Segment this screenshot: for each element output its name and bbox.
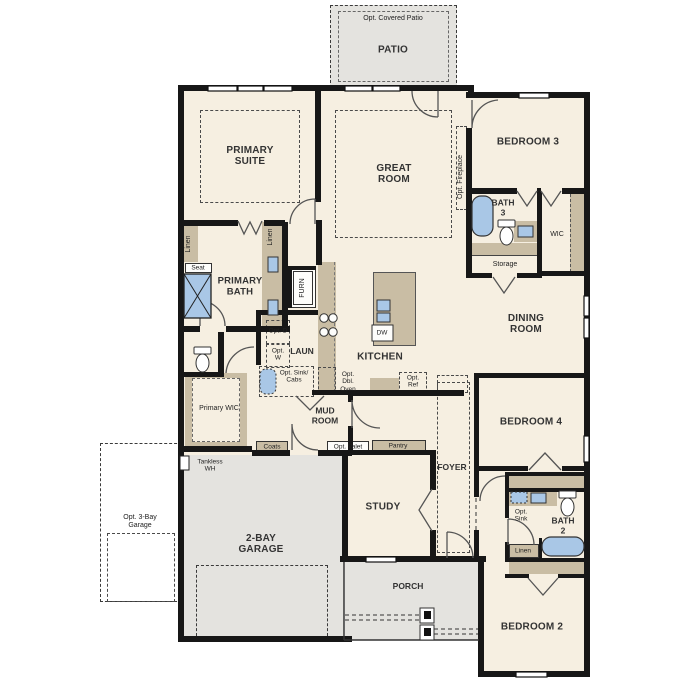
opt-sink-cabs-label: Opt. Sink/ Cabs — [274, 370, 314, 385]
patio-label: PATIO — [378, 44, 408, 55]
mudroom-hall-door — [352, 400, 380, 428]
toilet-bath3 — [498, 220, 515, 245]
island-sink — [377, 300, 390, 322]
opt-dryer-label: Opt. D — [268, 327, 288, 334]
bedroom4-door — [529, 453, 561, 470]
bath3-sink — [518, 226, 533, 237]
coats-label: Coats — [264, 443, 281, 450]
garage-label: 2-BAY GARAGE — [231, 533, 291, 555]
linen-primary-label: Linen — [185, 235, 193, 252]
plan-linework — [0, 0, 687, 687]
bath2-opt-sink — [511, 492, 527, 503]
great-room-patio-door — [412, 91, 438, 117]
floor-plan: Opt. Covered Patio PATIO PRIMARY SUITE G… — [0, 0, 687, 687]
wic-door — [541, 191, 561, 206]
porch-post-2 — [420, 625, 434, 640]
primary-suite-label: PRIMARY SUITE — [215, 145, 285, 167]
porch-post-1 — [420, 608, 434, 623]
bedroom4-label: BEDROOM 4 — [500, 416, 562, 427]
opt-sink-label: Opt. Sink — [510, 509, 532, 524]
dining-room-label: DINING ROOM — [501, 313, 551, 335]
tankless-wh-label: Tankless WH — [192, 459, 228, 474]
primary-wic-label: Primary WIC — [196, 405, 242, 413]
pantry-label: Pantry — [389, 442, 408, 449]
bath3-label: BATH 3 — [489, 198, 517, 217]
linen-hall-label: Linen — [267, 228, 275, 245]
shower-primary — [184, 274, 211, 318]
dishwasher-label: DW — [377, 329, 388, 336]
primary-suite-entry-doors — [238, 221, 262, 234]
bath3-door — [517, 191, 537, 206]
porch-guide-lines — [345, 498, 478, 634]
porch-edges — [344, 562, 479, 640]
bedroom2-label: BEDROOM 2 — [501, 621, 563, 632]
tub-bath2 — [542, 537, 584, 556]
linen-bath2-label: Linen — [515, 547, 531, 554]
opt-fireplace-label: Opt. Fireplace — [457, 155, 465, 199]
great-room-label: GREAT ROOM — [367, 163, 422, 185]
storage-label: Storage — [493, 261, 518, 269]
tankless-water-heater — [180, 456, 189, 470]
bedroom3-door — [472, 100, 498, 128]
wic-label: WIC — [550, 231, 564, 239]
seat-label: Seat — [191, 264, 204, 271]
mud-room-label: MUD ROOM — [304, 406, 346, 425]
opt-valet-label: Opt. Valet — [334, 443, 362, 450]
opt-ref-label: Opt. Ref — [402, 375, 424, 390]
laundry-label: LAUN — [290, 347, 314, 357]
primary-bath-label: PRIMARY BATH — [210, 276, 270, 297]
bath2-label: BATH 2 — [549, 516, 577, 535]
foyer-label: FOYER — [437, 463, 466, 473]
primary-sink-2 — [268, 300, 278, 315]
opt-dbl-oven-label: Opt. Dbl. Oven — [337, 371, 359, 393]
primary-sink-1 — [268, 257, 278, 272]
primary-wic-door — [226, 347, 254, 373]
storage-door — [493, 277, 515, 293]
patio-opt-label: Opt. Covered Patio — [363, 15, 423, 23]
bedroom2-door — [528, 578, 558, 595]
study-label: STUDY — [366, 501, 401, 512]
front-door — [447, 532, 473, 558]
bedroom3-label: BEDROOM 3 — [497, 136, 559, 147]
bath2-sink — [531, 493, 546, 503]
toilet-primary — [194, 347, 211, 372]
furn-label: FURN — [299, 278, 307, 297]
porch-label: PORCH — [393, 582, 424, 592]
opt-3bay-garage-label: Opt. 3-Bay Garage — [112, 514, 168, 530]
primary-suite-door — [290, 199, 315, 224]
hall-bedroom4-door — [480, 476, 505, 501]
opt-washer-label: Opt. W — [268, 348, 288, 363]
toilet-bath2 — [559, 491, 576, 516]
cooktop-burners — [320, 314, 337, 336]
garage-entry-door — [292, 424, 318, 450]
study-double-door — [419, 489, 432, 531]
kitchen-label: KITCHEN — [357, 351, 403, 362]
